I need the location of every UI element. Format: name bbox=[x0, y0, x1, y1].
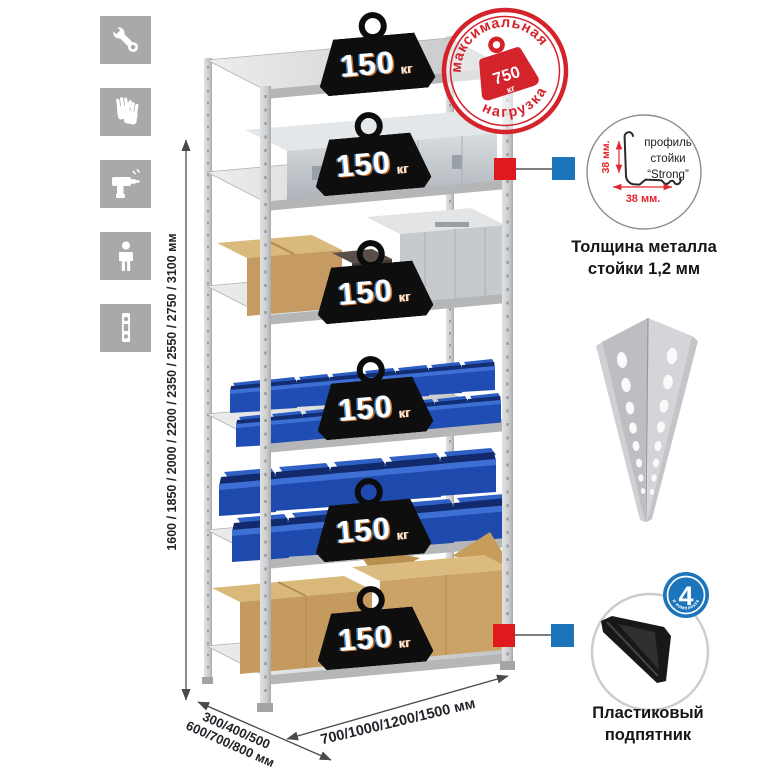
shelving-infographic: 4 в комплекте максимальная нагрузка 750 … bbox=[0, 0, 765, 765]
weight-badge-4: 150кг bbox=[312, 351, 435, 441]
height-dimension-label: 1600 / 1850 / 2000 / 2200 / 2350 / 2550 … bbox=[165, 233, 179, 550]
connector-top bbox=[494, 157, 575, 180]
weight-badge-6: 150кг bbox=[312, 581, 435, 671]
weight-badge-5: 150кг bbox=[310, 473, 433, 563]
connector-blue-square bbox=[552, 157, 575, 180]
weight-unit: кг bbox=[400, 60, 413, 76]
weight-value: 150 bbox=[335, 144, 393, 185]
foot-caption: Пластиковый подпятник bbox=[548, 702, 748, 747]
weight-unit: кг bbox=[398, 634, 411, 650]
profile-dim-vertical: 38 мм. bbox=[600, 140, 612, 173]
connector-blue-square bbox=[551, 624, 574, 647]
profile-label-line2: стойки bbox=[644, 151, 692, 167]
weight-value: 150 bbox=[337, 618, 395, 659]
weight-badge-1: 150кг bbox=[314, 7, 437, 97]
level-icon bbox=[109, 311, 143, 345]
sidebar-tile-tools bbox=[100, 16, 151, 64]
weight-badge-3: 150кг bbox=[312, 235, 435, 325]
gloves-icon bbox=[109, 95, 143, 129]
weight-unit: кг bbox=[396, 160, 409, 176]
connector-bottom bbox=[493, 624, 574, 647]
weight-value: 150 bbox=[339, 44, 397, 85]
profile-dim-horizontal: 38 мм. bbox=[626, 193, 661, 205]
foot-caption-line2: подпятник bbox=[548, 724, 748, 746]
weight-unit: кг bbox=[396, 526, 409, 542]
weight-badge-2: 150кг bbox=[310, 107, 433, 197]
weight-unit: кг bbox=[398, 288, 411, 304]
profile-caption-line2: стойки 1,2 мм bbox=[544, 258, 744, 280]
sidebar-tile-level bbox=[100, 304, 151, 352]
wrench-icon bbox=[109, 23, 143, 57]
weight-value: 150 bbox=[335, 510, 393, 551]
profile-caption: Толщина металла стойки 1,2 мм bbox=[544, 236, 744, 281]
weight-value: 150 bbox=[337, 272, 395, 313]
foot-caption-line1: Пластиковый bbox=[548, 702, 748, 724]
profile-label-line3: “Strong” bbox=[644, 167, 692, 183]
connector-red-square bbox=[494, 158, 516, 180]
person-icon bbox=[109, 239, 143, 273]
quantity-badge: 4 в комплекте bbox=[663, 572, 709, 618]
weight-value: 150 bbox=[337, 388, 395, 429]
sidebar-tile-person bbox=[100, 232, 151, 280]
profile-label: профиль стойки “Strong” bbox=[644, 135, 692, 183]
profile-caption-line1: Толщина металла bbox=[544, 236, 744, 258]
weight-unit: кг bbox=[398, 404, 411, 420]
corner-post-illustration bbox=[596, 318, 698, 522]
profile-label-line1: профиль bbox=[644, 135, 692, 151]
drill-icon bbox=[109, 167, 143, 201]
sidebar-tile-drill bbox=[100, 160, 151, 208]
connector-red-square bbox=[493, 624, 515, 647]
sidebar-tile-gloves bbox=[100, 88, 151, 136]
